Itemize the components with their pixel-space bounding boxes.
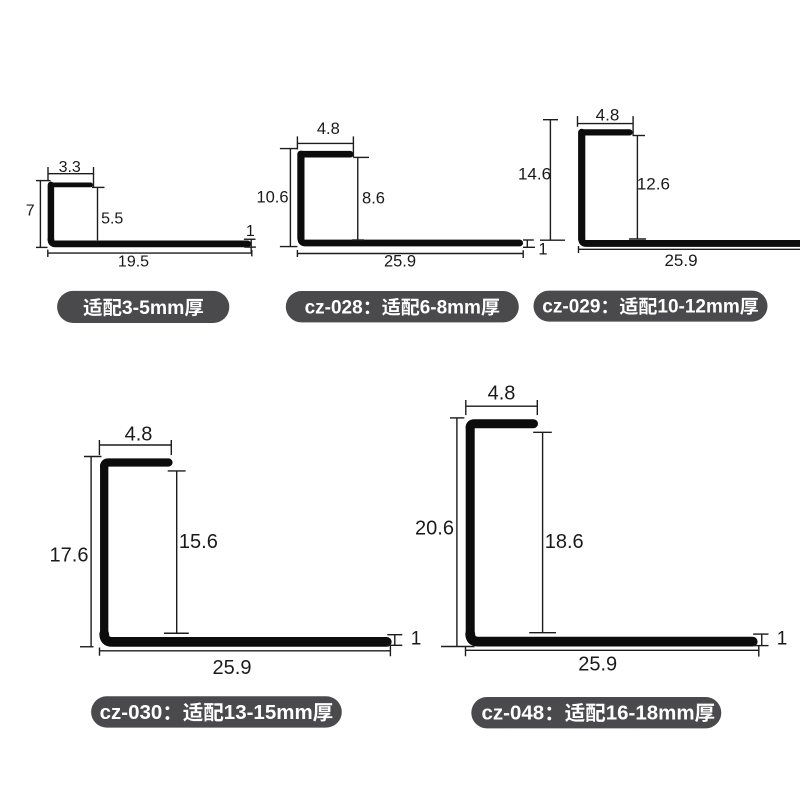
svg-text:4.8: 4.8 [317,120,340,138]
svg-text:17.6: 17.6 [50,545,89,567]
svg-text:3-5mm: 3-5mm [122,297,185,319]
svg-text:25.9: 25.9 [384,253,416,271]
svg-text:7: 7 [26,203,35,220]
svg-text:18.6: 18.6 [545,531,584,553]
svg-text:10.6: 10.6 [256,189,288,207]
svg-text:8.6: 8.6 [362,189,385,207]
svg-text:4.8: 4.8 [488,382,516,404]
svg-text:5.5: 5.5 [101,211,123,228]
svg-text:25.9: 25.9 [578,653,617,675]
svg-text:1: 1 [246,223,255,240]
svg-text:4.8: 4.8 [596,106,620,125]
svg-text:6-8mm: 6-8mm [420,297,481,318]
svg-text:4.8: 4.8 [125,424,153,446]
svg-text:3.3: 3.3 [59,159,81,176]
svg-text:25.9: 25.9 [213,657,252,679]
svg-text:cz-028: cz-028 [305,297,363,318]
svg-text:16-18mm: 16-18mm [606,702,695,725]
svg-text:cz-029: cz-029 [542,297,600,318]
svg-text:12.6: 12.6 [637,174,670,193]
svg-text:10-12mm: 10-12mm [657,297,739,318]
svg-text:14.6: 14.6 [518,164,551,183]
svg-text:25.9: 25.9 [664,251,697,270]
svg-text:13-15mm: 13-15mm [224,701,313,724]
svg-text:cz-030: cz-030 [100,701,163,724]
svg-text:1: 1 [777,629,788,650]
svg-text:15.6: 15.6 [179,531,218,553]
svg-text:1: 1 [411,628,422,649]
svg-text:cz-048: cz-048 [482,702,545,725]
svg-text:1: 1 [538,241,547,259]
svg-text:20.6: 20.6 [415,517,454,539]
svg-text:19.5: 19.5 [118,253,149,270]
